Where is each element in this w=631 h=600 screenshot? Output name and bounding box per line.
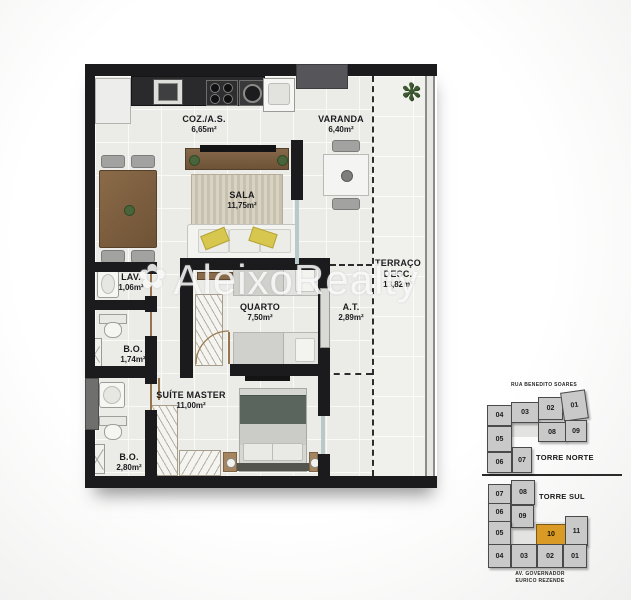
bo1-toilet [99,314,125,338]
keyplan-unit-sul-07: 07 [488,484,511,504]
door-arc-quarto [195,330,230,365]
varanda-table [323,154,369,196]
single-bed-2 [233,332,319,366]
suite-closet-horizontal [179,450,221,476]
washer-icon [239,80,265,106]
keyplan-unit-sul-08: 08 [511,480,535,505]
keyplan-unit-sul-03: 03 [511,544,537,568]
door-bo1 [150,312,152,336]
room-area: 6,65m² [164,125,244,135]
floorplan-screenshot: ✻ [0,0,631,600]
flower-icon: ✿ [138,258,168,296]
keyplan-divider [482,474,622,476]
dining-chair [101,155,125,168]
label-kitchen: COZ./A.S. 6,65m² [164,114,244,134]
wall-sala-varanda [291,140,303,200]
room-area: 7,50m² [215,313,305,323]
label-suite: SUÍTE MASTER 11,00m² [143,390,239,410]
varanda-chair [332,140,360,152]
watermark-text: AleixoRealty [174,256,419,303]
wall-suite-right-b [318,454,330,476]
wall-beam [296,64,348,89]
duct-shaft [85,378,99,430]
watermark: ✿AleixoRealty [138,256,419,304]
room-name: B.O. [102,344,164,355]
keyplan-unit-norte-06: 06 [487,452,512,473]
keyplan-unit-norte-02: 02 [538,397,563,420]
room-area: 11,00m² [143,401,239,411]
at-dashed-bottom [323,373,372,375]
label-quarto: QUARTO 7,50m² [215,302,305,322]
keyplan-unit-norte-09: 09 [565,420,587,442]
street-label-top: RUA BENEDITO SOARES [484,382,604,388]
torre-sul-title: TORRE SUL [539,492,585,501]
nightstand-right [309,452,318,472]
dining-table [99,170,157,248]
stove-icon [206,80,238,106]
keyplan-unit-norte-01: 01 [560,389,589,421]
fridge-cabinet [95,78,131,124]
tv-icon [200,145,276,152]
label-at: A.T. 2,89m² [321,302,381,322]
label-varanda: VARANDA 6,40m² [301,114,381,134]
nightstand-left [223,452,237,472]
tv-rack [185,148,289,170]
glass-door-varanda [295,200,299,264]
room-name: COZ./A.S. [164,114,244,125]
street-label-bottom-line1: AV. GOVERNADOR [485,571,595,577]
bo2-sink [99,382,125,408]
street-label-bottom-line2: EURICO REZENDE [485,578,595,584]
keyplan-unit-norte-04: 04 [487,405,512,426]
keyplan-unit-sul-06: 06 [488,503,511,522]
wall-suite-right-a [318,378,330,416]
laundry-tank [263,78,295,112]
bed-blanket [240,395,306,426]
keyplan-unit-norte-08: 08 [538,422,566,442]
room-name: SUÍTE MASTER [143,390,239,401]
dining-chair [131,155,155,168]
wall-top [85,64,437,76]
keyplan-lobby [511,421,539,437]
label-sala: SALA 11,75m² [202,190,282,210]
bo2-toilet [99,416,125,440]
label-bo1: B.O. 1,74m² [102,344,164,364]
suite-tv-icon [245,376,290,381]
room-area: 2,80m² [98,463,160,473]
kitchen-counter [131,76,265,106]
room-area: 1,74m² [102,355,164,365]
keyplan-unit-sul-02: 02 [537,544,563,568]
torre-norte-title: TORRE NORTE [536,453,594,462]
kitchen-sink [153,79,183,105]
label-bo2: B.O. 2,80m² [98,452,160,472]
plant-icon: ✻ [401,82,421,104]
double-bed [239,388,307,472]
room-area: 2,89m² [321,313,381,323]
wall-bo-suite [85,366,157,378]
glass-door-suite [321,416,325,454]
varanda-chair [332,198,360,210]
keyplan-unit-sul-09: 09 [511,505,534,528]
keyplan-unit-norte-03: 03 [511,402,539,423]
wall-quarto-bottom [230,364,330,376]
room-name: SALA [202,190,282,201]
wall-bottom [85,476,437,488]
room-name: VARANDA [301,114,381,125]
room-name: B.O. [98,452,160,463]
keyplan-unit-sul-11: 11 [565,516,588,546]
keyplan-unit-sul-01: 01 [563,544,587,568]
keyplan-unit-sul-05: 05 [488,521,511,545]
keyplan-unit-sul-10-highlighted: 10 [536,524,566,545]
room-area: 6,40m² [301,125,381,135]
room-area: 11,75m² [202,201,282,211]
keyplan-unit-sul-04: 04 [488,544,511,568]
keyplan-unit-norte-07: 07 [512,447,532,473]
keyplan-unit-norte-05: 05 [487,426,512,452]
